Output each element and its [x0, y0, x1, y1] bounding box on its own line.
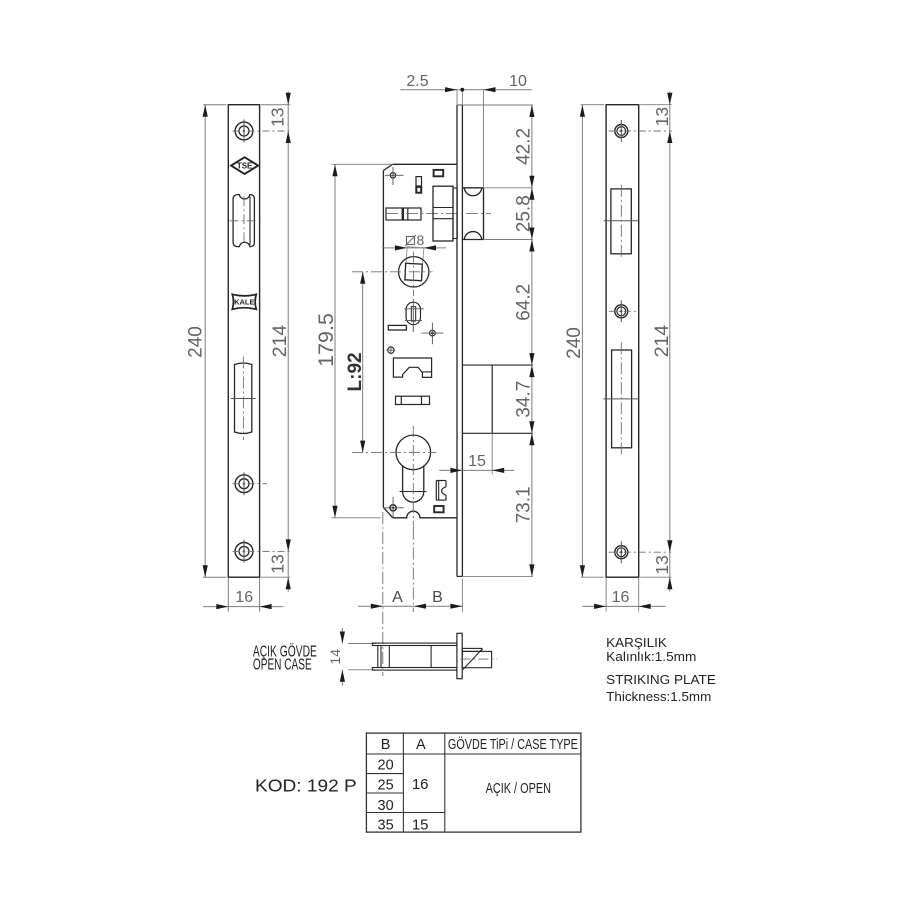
svg-text:15: 15 — [412, 817, 429, 834]
svg-text:10: 10 — [509, 73, 527, 90]
svg-text:34.7: 34.7 — [514, 381, 535, 418]
svg-text:30: 30 — [378, 798, 394, 814]
svg-text:Thickness:1.5mm: Thickness:1.5mm — [606, 689, 711, 704]
svg-text:13: 13 — [268, 554, 288, 573]
svg-text:KOD: 192 P: KOD: 192 P — [255, 776, 357, 796]
svg-text:14: 14 — [327, 649, 343, 665]
svg-text:179.5: 179.5 — [314, 313, 338, 367]
svg-text:240: 240 — [186, 326, 207, 358]
svg-text:OPEN CASE: OPEN CASE — [253, 656, 312, 673]
svg-text:25.8: 25.8 — [514, 195, 535, 232]
svg-text:15: 15 — [468, 453, 486, 470]
svg-text:TSE: TSE — [237, 161, 253, 170]
svg-text:240: 240 — [564, 327, 585, 359]
svg-text:13: 13 — [268, 107, 288, 126]
svg-text:35: 35 — [378, 818, 394, 834]
svg-text:KALE: KALE — [234, 298, 254, 307]
svg-text:20: 20 — [378, 757, 394, 773]
svg-text:16: 16 — [412, 776, 429, 793]
svg-text:214: 214 — [269, 325, 291, 358]
svg-text:B: B — [432, 589, 443, 606]
svg-text:42.2: 42.2 — [514, 128, 535, 165]
svg-text:B: B — [381, 737, 391, 753]
svg-text:AÇIK / OPEN: AÇIK / OPEN — [486, 781, 551, 797]
svg-text:A: A — [416, 737, 426, 753]
svg-text:A: A — [392, 589, 403, 606]
svg-text:16: 16 — [612, 589, 630, 606]
svg-text:GÖVDE TiPi / CASE TYPE: GÖVDE TiPi / CASE TYPE — [448, 735, 578, 753]
svg-text:Kalınlık:1.5mm: Kalınlık:1.5mm — [606, 649, 696, 664]
svg-text:KARŞILIK: KARŞILIK — [606, 635, 667, 650]
svg-text:2.5: 2.5 — [406, 73, 428, 90]
svg-text:25: 25 — [378, 778, 394, 794]
svg-text:214: 214 — [651, 325, 673, 358]
svg-text:16: 16 — [235, 589, 253, 606]
svg-text:64.2: 64.2 — [514, 284, 535, 321]
svg-text:8: 8 — [417, 232, 425, 248]
svg-text:73.1: 73.1 — [514, 486, 535, 523]
svg-text:L:92: L:92 — [345, 352, 366, 391]
svg-text:13: 13 — [652, 107, 672, 126]
svg-text:13: 13 — [652, 555, 672, 574]
svg-text:STRIKING PLATE: STRIKING PLATE — [606, 672, 716, 687]
